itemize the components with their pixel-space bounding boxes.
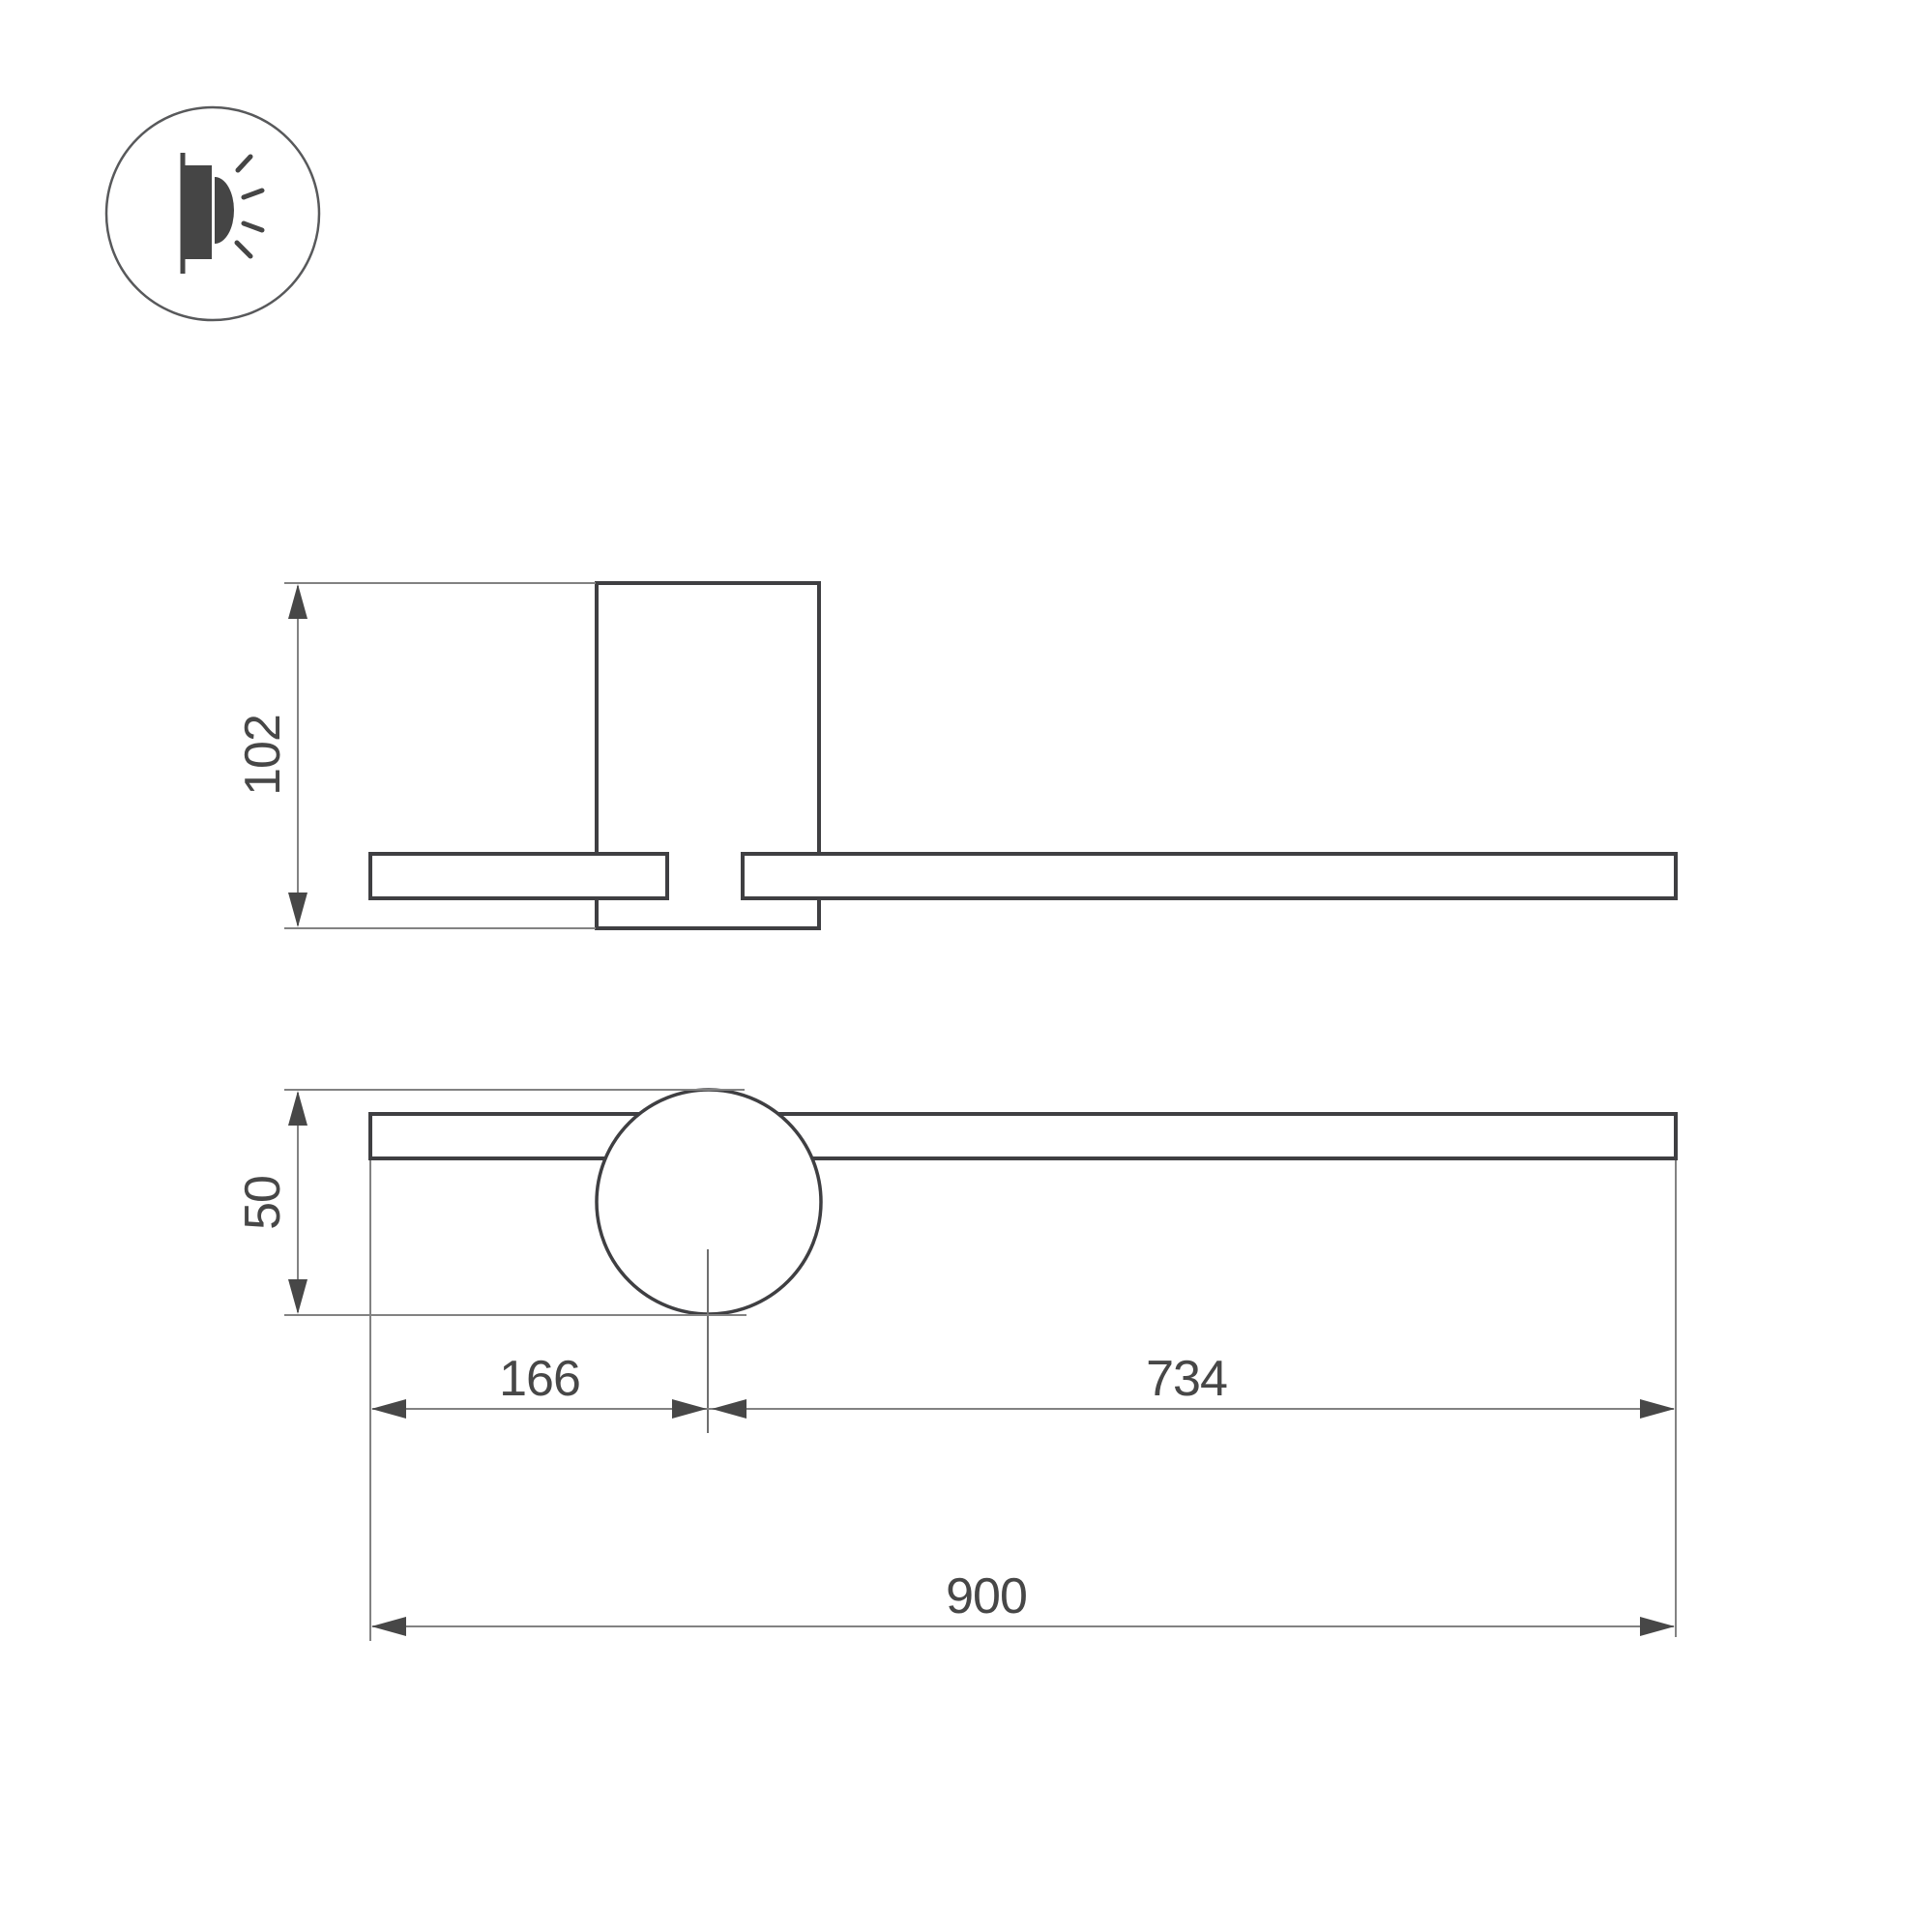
left-bar-outline <box>370 854 667 898</box>
arrow-up-icon <box>288 1091 307 1126</box>
light-ray-icon <box>238 157 250 170</box>
arrow-left-icon <box>712 1399 746 1419</box>
light-ray-icon <box>244 190 262 197</box>
light-ray-icon <box>237 243 250 256</box>
arrow-right-icon <box>1640 1617 1675 1636</box>
dimension-center-offsets: 166 734 <box>371 1351 1675 1419</box>
arrow-left-icon <box>371 1399 406 1419</box>
light-ray-icon <box>244 223 262 230</box>
dim-side-height-label: 102 <box>235 715 291 796</box>
lamp-dome-icon <box>215 177 234 244</box>
arrow-left-icon <box>371 1617 406 1636</box>
lamp-body-icon <box>184 165 212 259</box>
badge-circle-icon <box>106 107 319 320</box>
arrow-up-icon <box>288 584 307 619</box>
dim-lamp-diameter-label: 50 <box>235 1176 291 1230</box>
front-view: 50 166 734 900 <box>235 1090 1676 1641</box>
right-bar-outline <box>743 854 1676 898</box>
arrow-right-icon <box>1640 1399 1675 1419</box>
wall-lamp-badge <box>106 107 319 320</box>
dim-center-to-right-label: 734 <box>1146 1351 1227 1407</box>
arrow-down-icon <box>288 1279 307 1314</box>
arrow-down-icon <box>288 893 307 927</box>
dim-total-length-label: 900 <box>946 1568 1027 1625</box>
side-view: 102 <box>235 583 1676 928</box>
arrow-right-icon <box>672 1399 707 1419</box>
drawing-canvas: 102 50 166 734 <box>0 0 1932 1932</box>
front-bar-outline <box>370 1114 1676 1158</box>
technical-drawing: 102 50 166 734 <box>0 0 1932 1932</box>
dimension-total-length: 900 <box>371 1568 1675 1636</box>
dim-center-from-left-label: 166 <box>499 1351 580 1407</box>
